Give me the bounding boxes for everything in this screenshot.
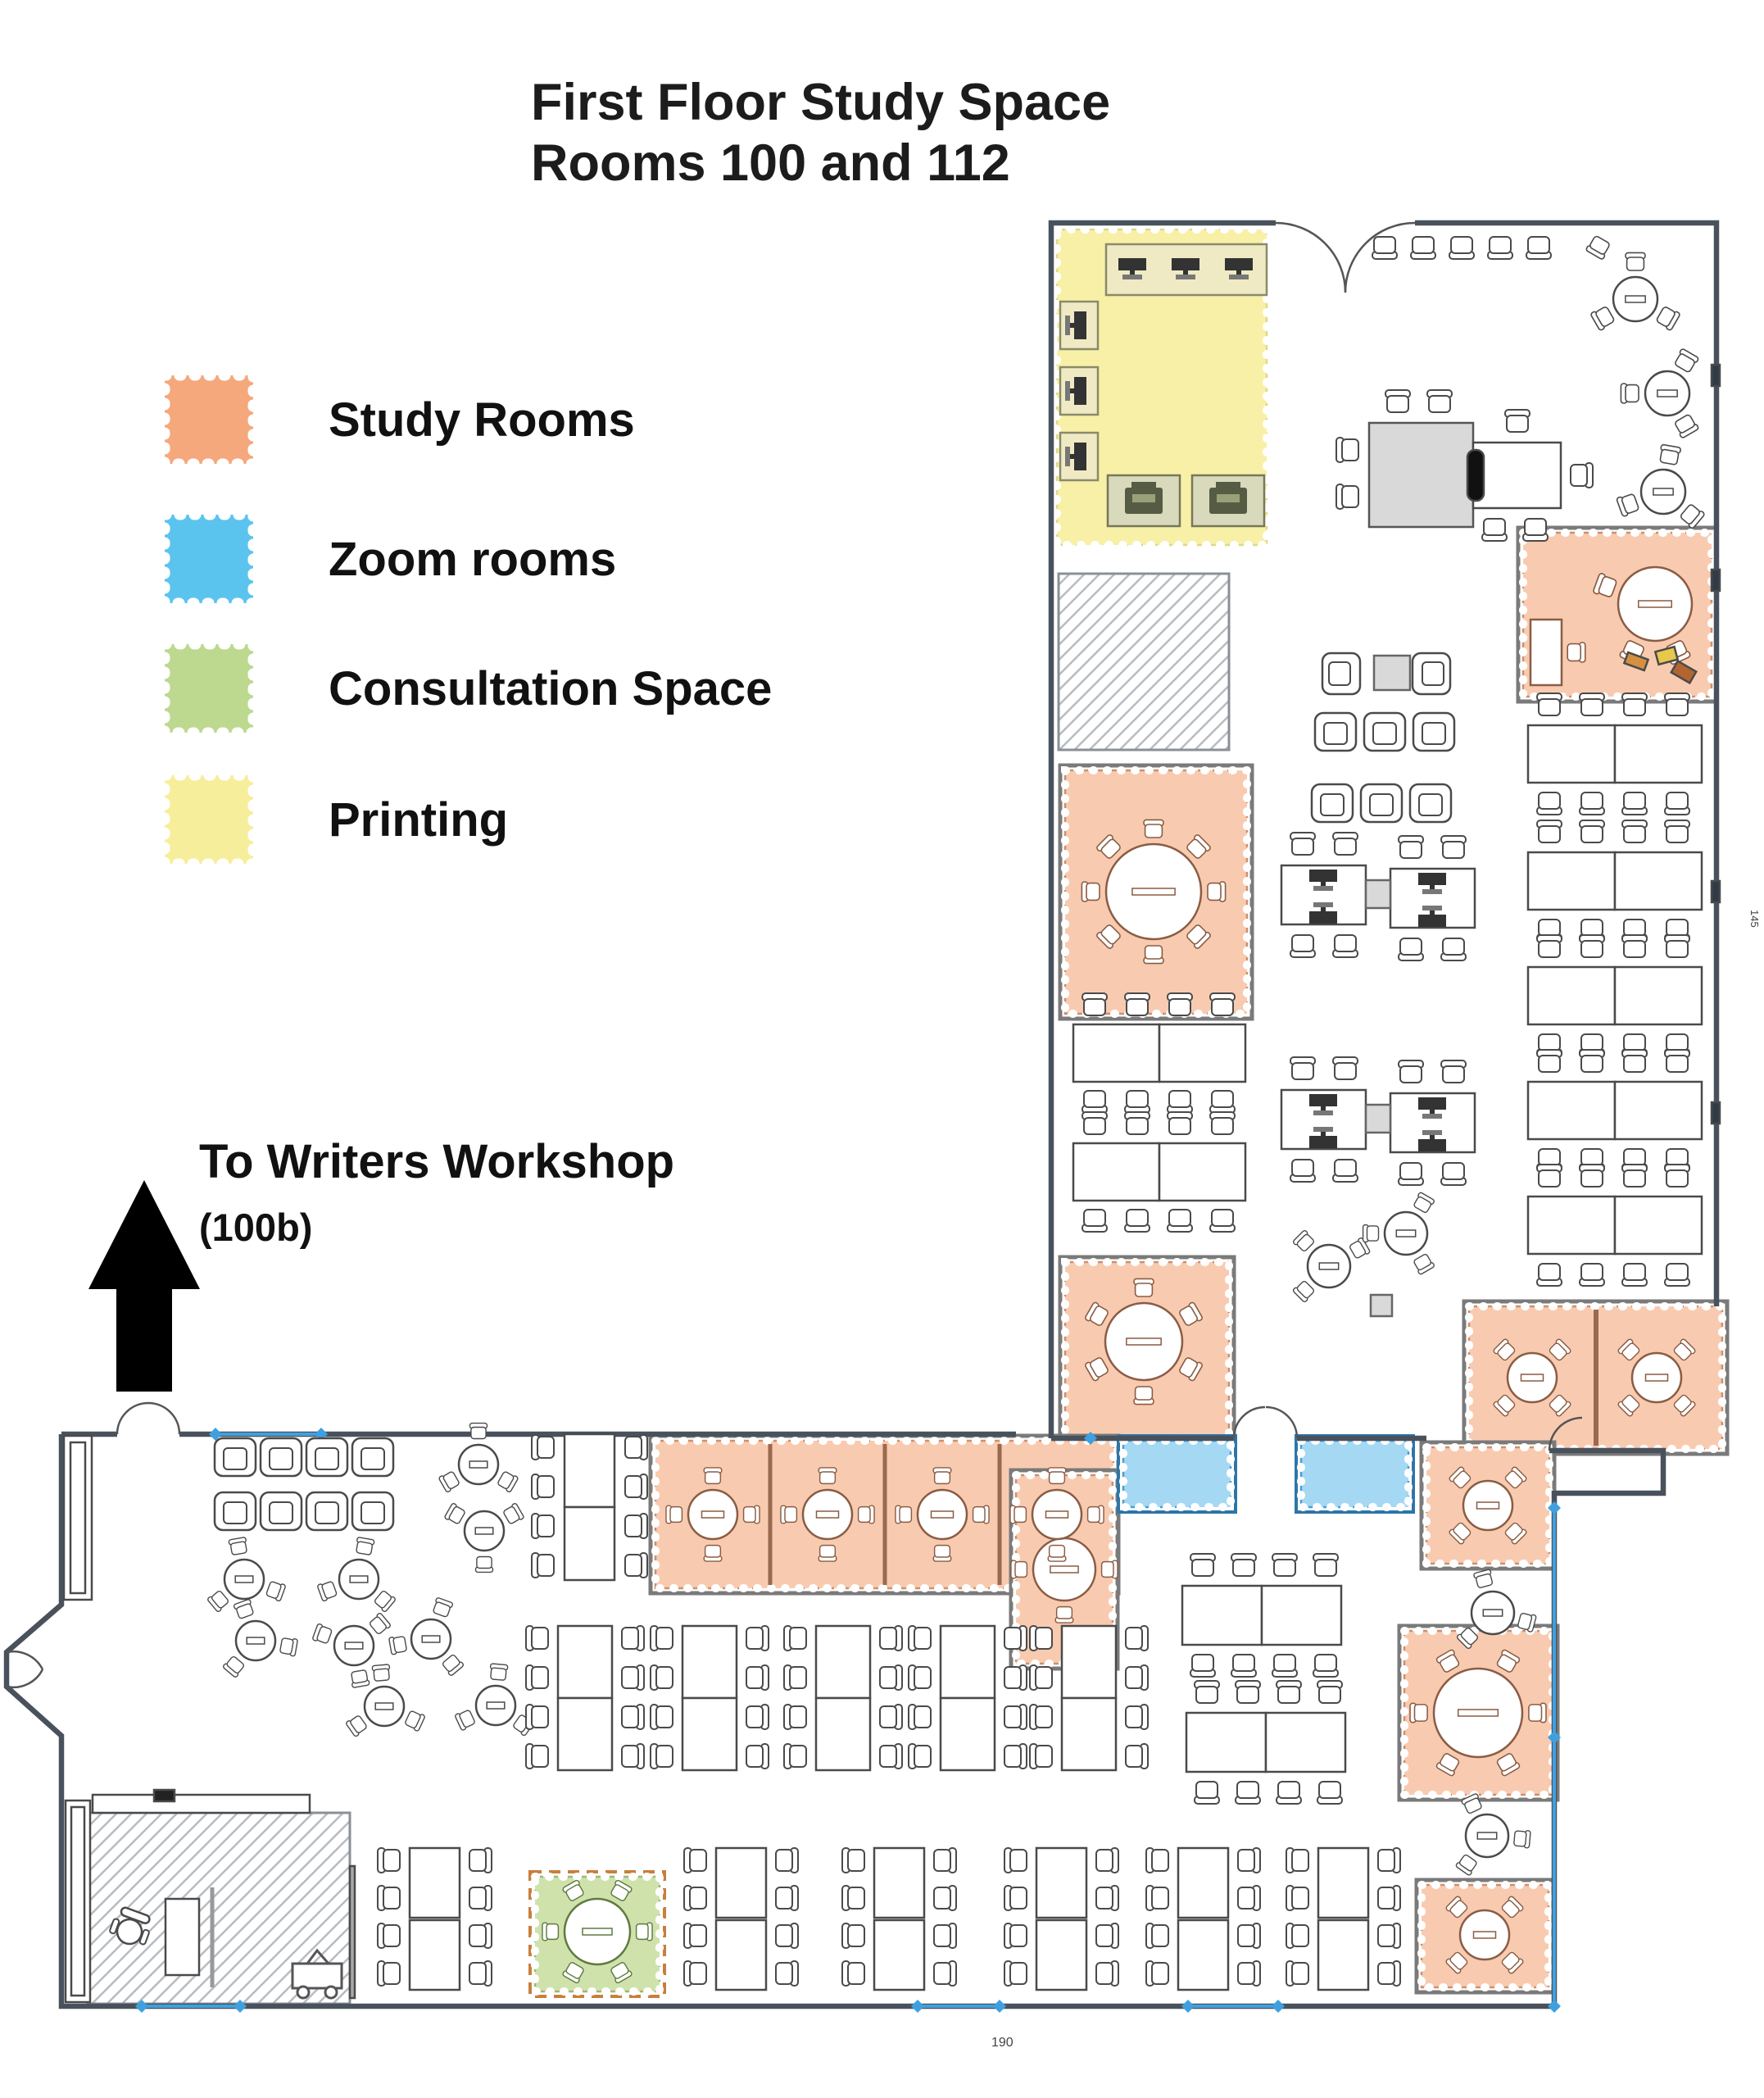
computer-icon [1225,258,1253,279]
computer-icon [1418,906,1446,927]
plan-label: 190 [991,2036,1014,2050]
computer-icon [1309,1094,1337,1115]
chair-row [651,1626,673,1769]
table [1473,443,1561,508]
table [716,1848,766,1918]
wall-marker [911,2000,924,2013]
table [1528,1082,1702,1139]
chair-row [1537,1050,1689,1072]
computer-icon [1309,902,1337,924]
computer-icon [1118,258,1146,279]
chair-row [1290,1160,1358,1182]
computer-icon [1418,1097,1446,1119]
chair [1482,519,1507,541]
lounge-chair [1312,784,1353,822]
table-group [223,1599,298,1678]
computer-icon [1065,377,1086,405]
table-group [1363,1192,1435,1274]
table [70,1442,85,1593]
table [1712,881,1720,902]
table [941,1698,995,1770]
table-group [444,1503,524,1573]
zoom-room-zone [1296,1436,1413,1512]
table [71,1807,84,1996]
table [1712,365,1720,386]
computer-icon [1065,311,1086,339]
table [93,1795,310,1813]
computer-icon [1065,443,1086,470]
lounge-chair [1322,653,1360,694]
lounge-chair [1315,713,1356,751]
chair [1585,234,1612,260]
chair-row [1399,836,1466,858]
chair-row [880,1626,902,1769]
chair-row [1537,1264,1689,1286]
table [1528,967,1702,1024]
service-desk-area [1059,574,1229,750]
computer-icon [1418,1130,1446,1151]
door-swing [117,1403,179,1434]
table [1528,852,1702,910]
chair-row [1399,938,1466,960]
table [1366,1105,1390,1133]
table [816,1626,870,1698]
chair-row [1537,792,1689,815]
plan-label: 145 [1748,910,1761,928]
table [154,1790,175,1801]
chair-row [1537,935,1689,957]
chair [1567,643,1585,662]
lounge-chair [215,1492,256,1530]
door-swing [7,1651,43,1687]
table [1062,1626,1116,1698]
table-group [455,1664,534,1737]
chair [1336,438,1358,462]
computer-icon [1418,873,1446,894]
table [1712,570,1720,591]
table [350,1866,355,1998]
chair-row [1190,1554,1338,1576]
lounge-chair [1364,713,1405,751]
table [941,1626,995,1698]
lounge-chair [1410,784,1451,822]
table [565,1434,614,1507]
chair-row [1030,1626,1052,1769]
table [1528,725,1702,783]
table-group [1293,1230,1371,1303]
chair-row [625,1435,647,1578]
zoom-room-zone [1118,1436,1236,1512]
computer-icon [1309,1127,1337,1148]
chair-row [1378,1848,1400,1986]
chair-row [378,1848,400,1986]
table [565,1507,614,1580]
chair-row [1082,1112,1235,1134]
chair-row [1195,1681,1342,1703]
chair-row [1290,833,1358,855]
chair [1385,390,1410,412]
table [682,1626,737,1698]
table [1528,1197,1702,1254]
chair-row [784,1626,806,1769]
chair-row [1004,1626,1027,1769]
chair-row [1238,1848,1260,1986]
table [1374,656,1410,690]
door-swing [1234,1407,1297,1438]
table [166,1899,199,1975]
lounge-chair [1413,713,1454,751]
chair [1523,519,1548,541]
table [1530,620,1562,685]
chair-row [684,1848,706,1986]
chair-row [1146,1848,1168,1986]
table [1366,880,1390,908]
table [874,1848,924,1918]
floor-plan-page: { "title": {"line1": "First Floor Study … [0,0,1764,2098]
table [874,1920,924,1990]
computer-icon [1172,258,1199,279]
table [816,1698,870,1770]
table [558,1626,612,1698]
wall-marker [1181,2000,1195,2013]
chair-row [1290,1057,1358,1079]
table [1371,1295,1392,1316]
table [1369,423,1473,527]
table [1318,1920,1368,1990]
chair-row [1190,1655,1338,1677]
wall-marker [993,2000,1006,2013]
chair-row [526,1626,548,1769]
table-group [317,1537,396,1613]
lounge-chair [215,1438,256,1476]
chair-row [1372,237,1551,259]
table-group [1617,444,1705,529]
table [1036,1848,1086,1918]
chair-row [1399,1163,1466,1185]
chair [1571,463,1593,488]
lounge-chair [261,1492,302,1530]
chair-row [1399,1060,1466,1083]
table [1186,1713,1345,1772]
chair-row [1537,1165,1689,1187]
table [1178,1848,1228,1918]
wall-marker [1272,2000,1285,2013]
chair-row [1195,1782,1342,1804]
chair-row [842,1848,864,1986]
table [1712,1102,1720,1124]
chair-row [776,1848,798,1986]
table [682,1698,737,1770]
table [1073,1143,1245,1201]
table [716,1920,766,1990]
table [1062,1698,1116,1770]
chair [1505,410,1530,432]
chair-row [1537,820,1689,842]
chair-row [1004,1848,1027,1986]
lounge-chair [306,1492,347,1530]
lounge-chair [1413,653,1450,694]
table-group [1455,1793,1530,1876]
chair-row [934,1848,956,1986]
chair [1427,390,1452,412]
table [1318,1848,1368,1918]
table [1467,450,1484,501]
lounge-chair [1361,784,1402,822]
chair-row [1286,1848,1308,1986]
table-group [389,1597,465,1676]
lounge-chair [352,1438,393,1476]
lounge-chair [306,1438,347,1476]
lounge-chair [261,1438,302,1476]
table-group [1590,252,1680,330]
table [1178,1920,1228,1990]
chair-row [532,1435,554,1578]
table [410,1920,460,1990]
computer-icon [1309,870,1337,891]
chair-row [1290,935,1358,957]
wall-marker [1548,2000,1561,2013]
chair-row [746,1626,769,1769]
wall [1549,1451,1663,2006]
chair-row [622,1626,644,1769]
chair-row [469,1848,492,1986]
chair-row [1082,1091,1235,1113]
lounge-chair [352,1492,393,1530]
chair-row [909,1626,931,1769]
table [1073,1024,1245,1082]
chair-row [1082,1210,1235,1232]
floor-plan: 190145 [0,0,1764,2098]
table [410,1848,460,1918]
table [1182,1586,1341,1645]
chair-row [1126,1626,1148,1769]
table [1036,1920,1086,1990]
chair [1336,484,1358,509]
table-group [1621,348,1698,438]
chair-row [1096,1848,1118,1986]
table [558,1698,612,1770]
